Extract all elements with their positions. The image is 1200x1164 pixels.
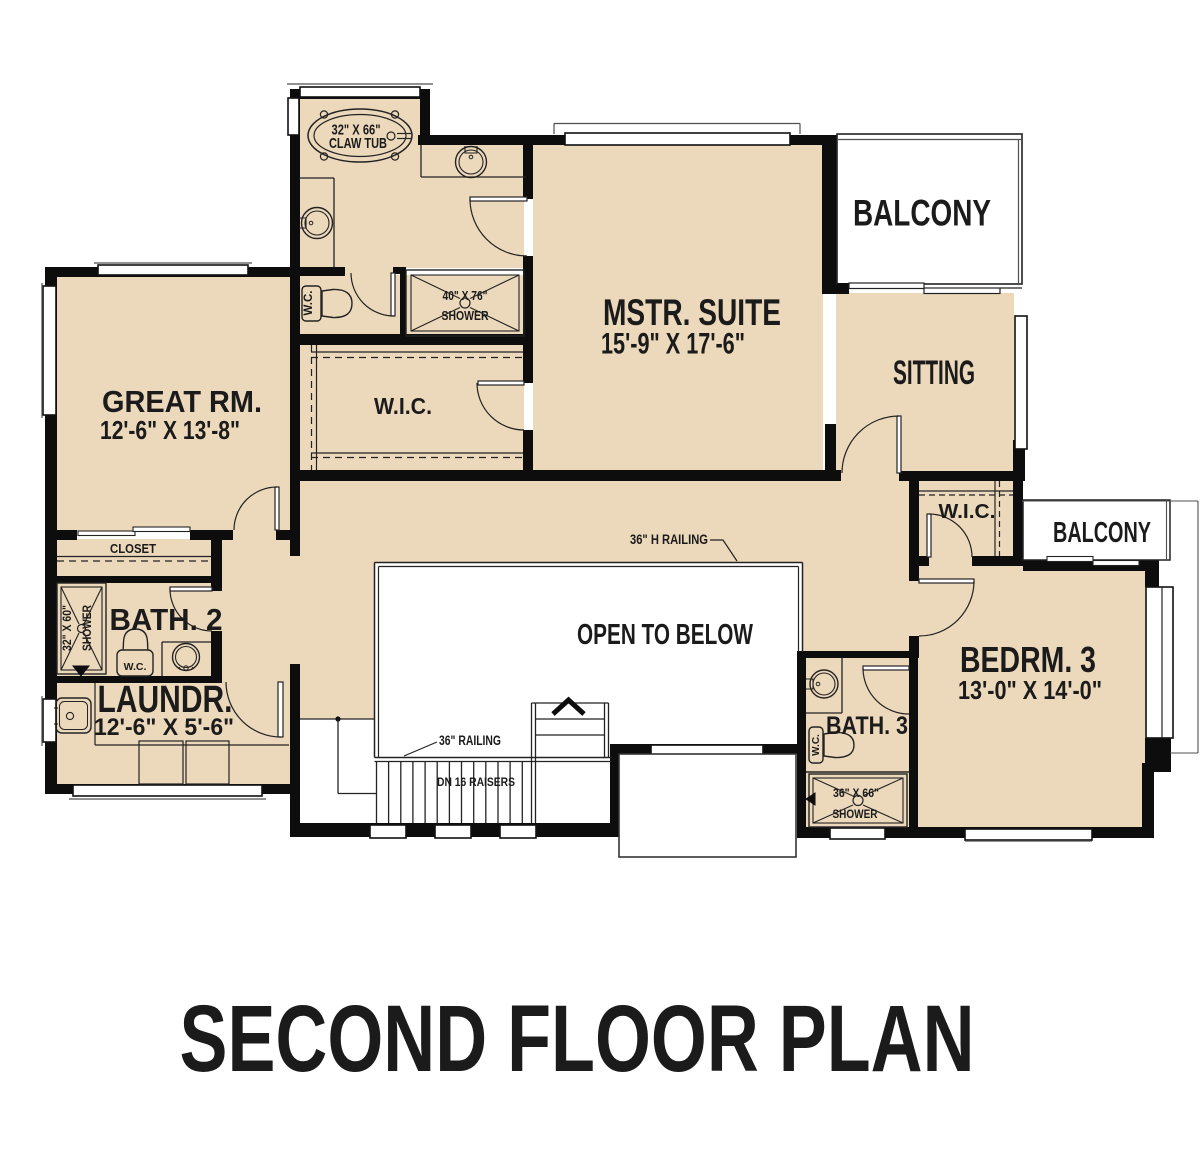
svg-text:32" X 60": 32" X 60" [62,605,74,651]
svg-text:W.C.: W.C. [303,291,315,316]
svg-text:GREAT RM.: GREAT RM. [102,384,262,419]
svg-text:12'-6" X 13'-8": 12'-6" X 13'-8" [100,415,240,445]
svg-text:SECOND FLOOR PLAN: SECOND FLOOR PLAN [180,986,975,1092]
svg-text:BALCONY: BALCONY [853,193,991,234]
svg-text:SHOWER: SHOWER [82,604,94,651]
svg-text:SHOWER: SHOWER [833,807,878,821]
svg-text:W.C.: W.C. [811,734,822,756]
svg-text:CLAW TUB: CLAW TUB [329,135,387,152]
svg-text:BATH. 2: BATH. 2 [110,602,223,637]
svg-text:15'-9" X 17'-6": 15'-9" X 17'-6" [601,328,745,361]
svg-text:36" X 66": 36" X 66" [833,786,879,800]
svg-text:BALCONY: BALCONY [1053,517,1151,549]
svg-text:DN 16 RAISERS: DN 16 RAISERS [437,777,515,789]
svg-text:BEDRM. 3: BEDRM. 3 [960,639,1096,680]
svg-text:W.I.C.: W.I.C. [374,393,432,419]
svg-text:36" RAILING: 36" RAILING [439,733,501,748]
svg-text:SITTING: SITTING [893,354,975,392]
svg-text:13'-0" X 14'-0": 13'-0" X 14'-0" [958,675,1102,705]
svg-text:SHOWER: SHOWER [442,308,489,323]
svg-text:36" H RAILING: 36" H RAILING [630,532,708,547]
svg-text:40" X 76": 40" X 76" [443,288,488,303]
svg-text:W.I.C.: W.I.C. [939,501,996,523]
svg-text:12'-6" X 5'-6": 12'-6" X 5'-6" [94,714,234,741]
svg-text:CLOSET: CLOSET [110,542,156,556]
svg-text:OPEN TO BELOW: OPEN TO BELOW [577,619,753,651]
svg-text:W.C.: W.C. [124,661,147,673]
svg-text:BATH. 3: BATH. 3 [826,712,908,740]
